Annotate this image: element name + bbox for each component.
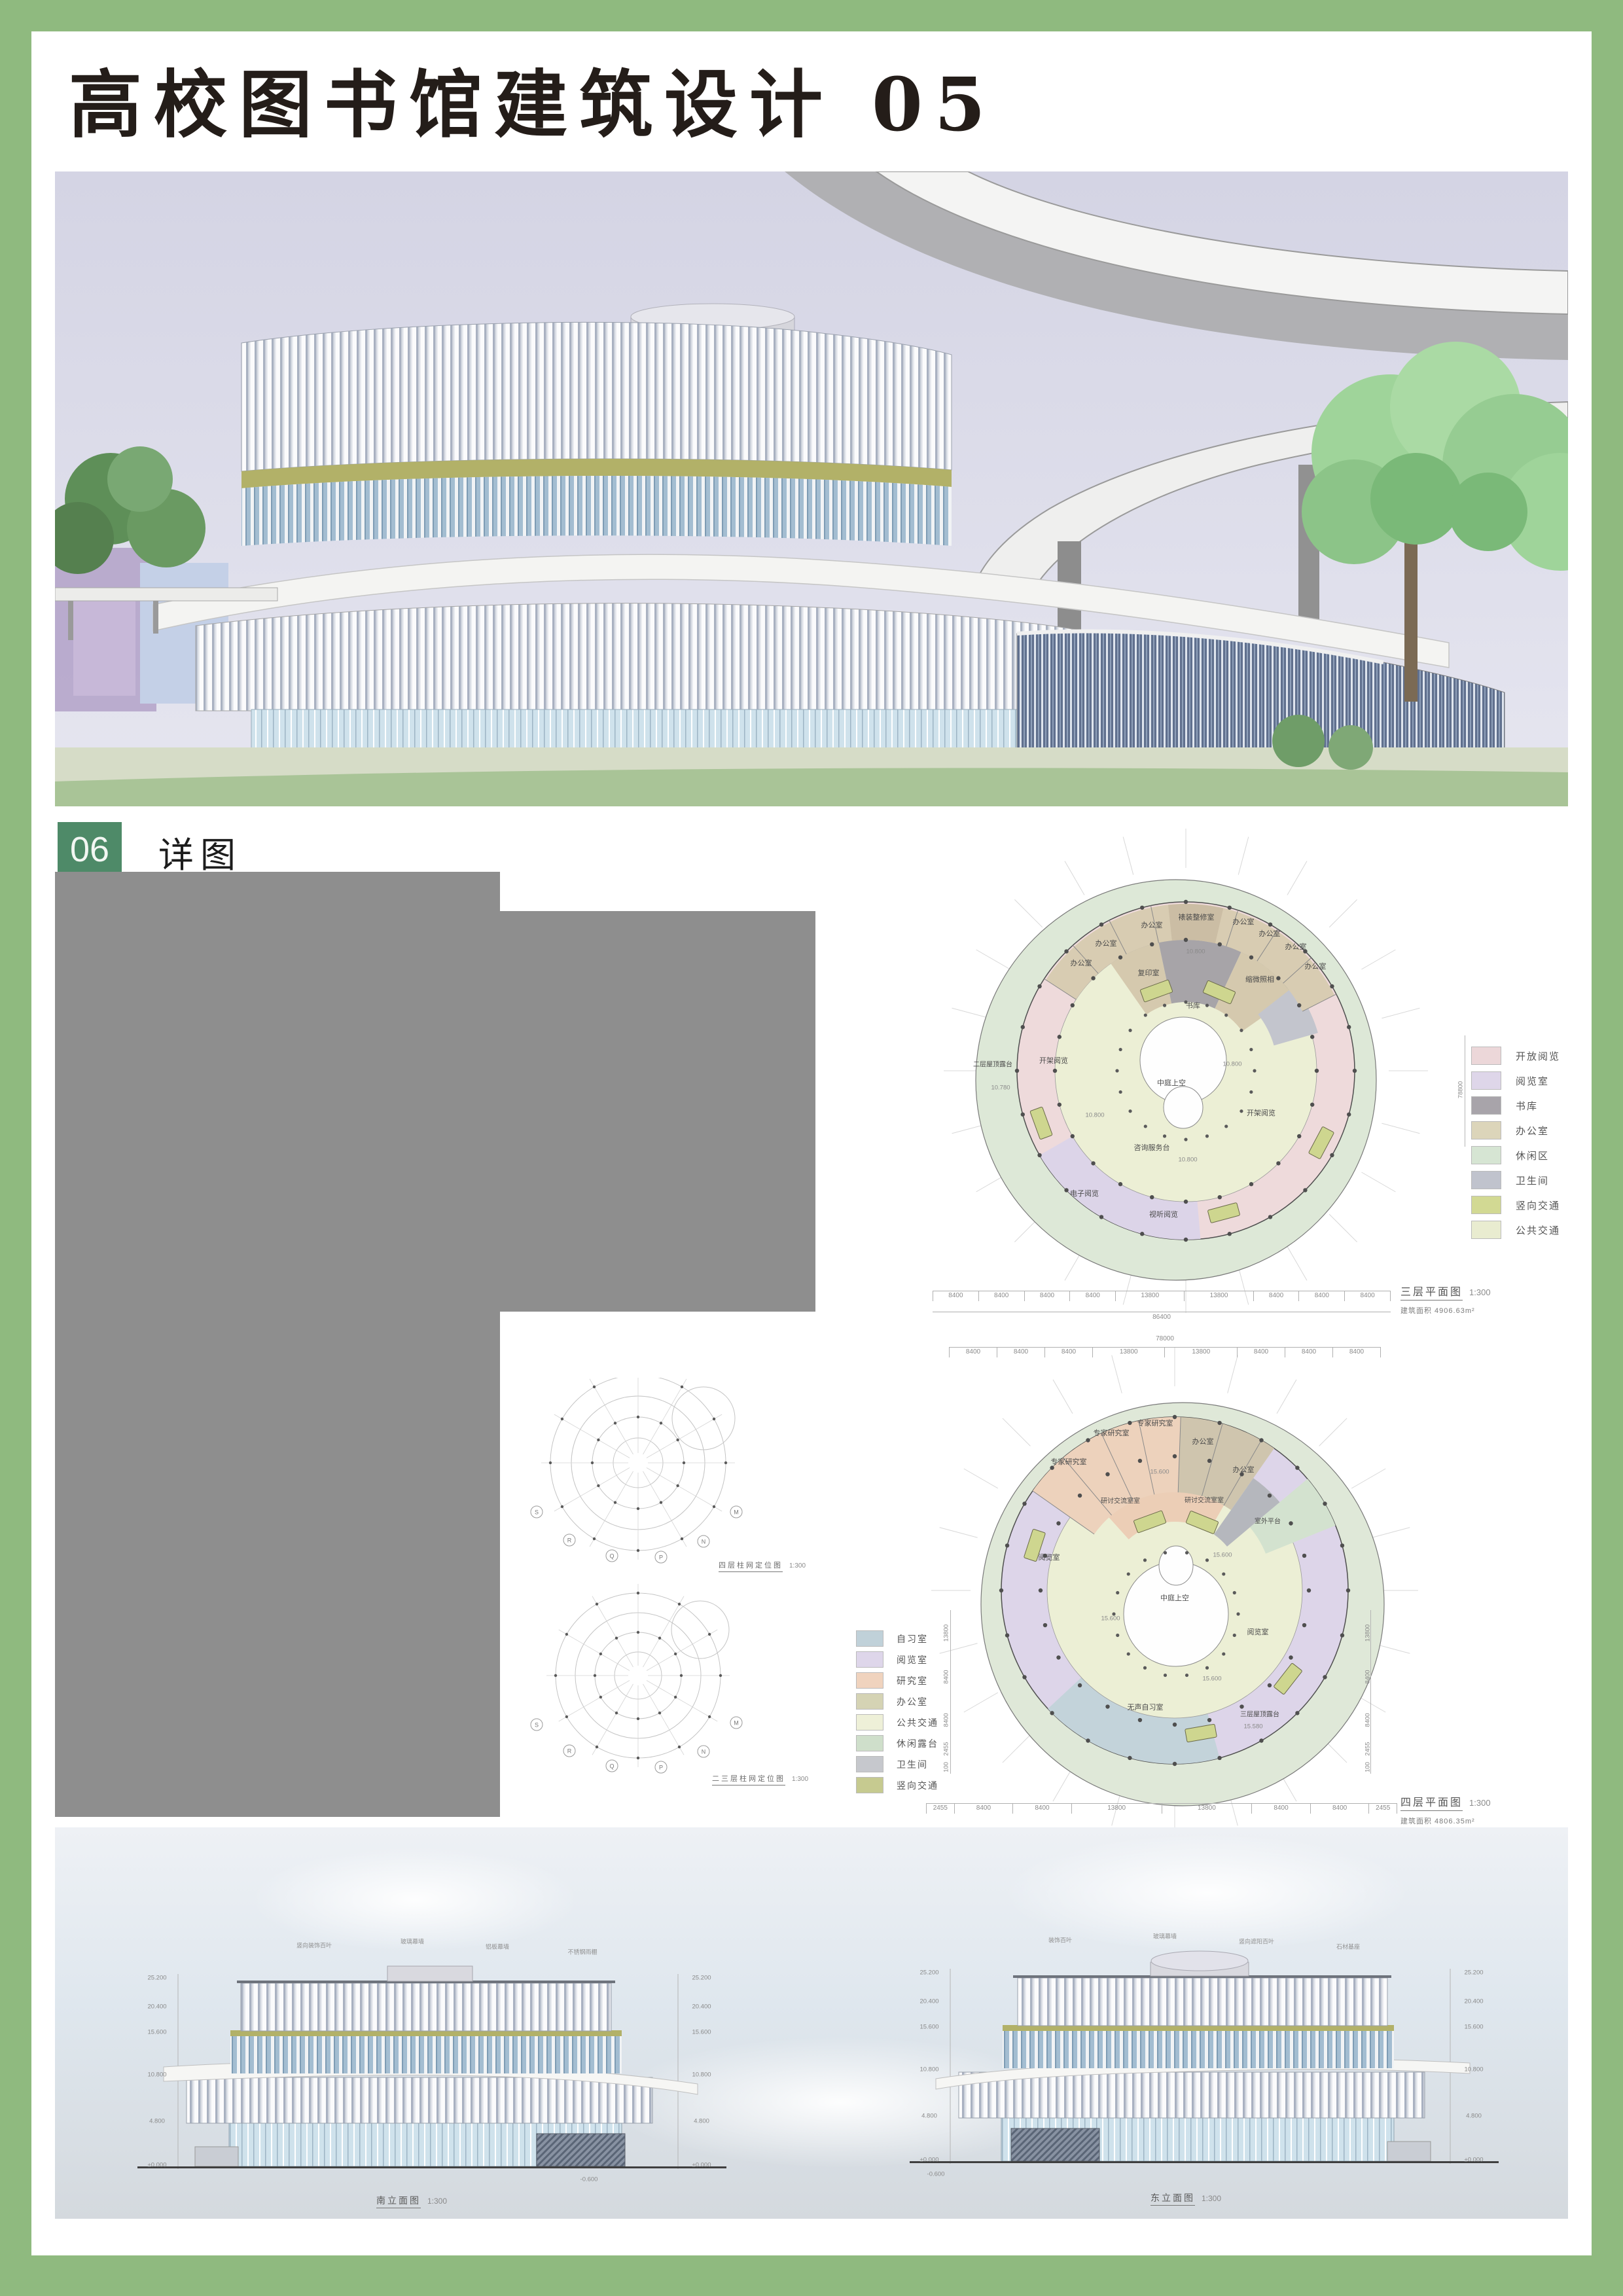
legend-swatch [856, 1756, 883, 1772]
drawing-label: ±0.000 [692, 2162, 711, 2169]
drawing-label: 15.600 [1150, 1469, 1169, 1476]
dimension-value: 8400 [954, 1804, 1013, 1814]
dimension-value: 8400 [1332, 1348, 1381, 1357]
drawing-label: S [531, 1506, 543, 1518]
drawing-label: 竖向遮阳百叶 [1239, 1937, 1274, 1946]
legend-item: 阅览室 [1471, 1072, 1560, 1089]
legend-item: 卫生间 [856, 1757, 938, 1772]
legend-plan-4: 自习室阅览室研究室办公室公共交通休闲露台卫生间竖向交通 [856, 1631, 938, 1799]
legend-label: 公共交通 [897, 1716, 938, 1729]
drawing-label: 办公室 [1141, 920, 1163, 930]
drawing-label: 玻璃幕墙 [1153, 1932, 1177, 1941]
caption-text: 东立面图 [1150, 2193, 1195, 2206]
drawing-label: 竖向装饰百叶 [296, 1941, 332, 1950]
drawing-label: 4.800 [149, 2118, 165, 2125]
building-rendering-image [55, 171, 1568, 806]
legend-swatch [856, 1777, 883, 1793]
drawing-label: 办公室 [1259, 928, 1281, 939]
page-title: 高校图书馆建筑设计 05 [69, 46, 1508, 152]
drawing-label: 10.800 [1222, 1061, 1241, 1068]
drawing-label: 10.780 [991, 1085, 1010, 1092]
drawing-label: 不锈钢雨棚 [567, 1948, 597, 1956]
legend-label: 办公室 [897, 1695, 928, 1708]
elevation-south-drawing [118, 1936, 746, 2198]
caption-scale: 1:300 [792, 1776, 808, 1783]
legend-item: 竖向交通 [856, 1778, 938, 1793]
dimension-value: 13800 [1162, 1804, 1252, 1814]
drawing-label: 研讨交流室室 [1101, 1496, 1140, 1505]
legend-swatch [1471, 1047, 1501, 1065]
drawing-label: 办公室 [1233, 916, 1255, 927]
dimension-value: 2455 [926, 1804, 954, 1814]
drawing-label: 25.200 [147, 1975, 166, 1982]
legend-label: 休闲区 [1516, 1149, 1549, 1162]
dimension-value: 13800 [1092, 1348, 1165, 1357]
column-grid-drawing [514, 1378, 776, 1568]
column-grid-diagram-2: SRQPNM [514, 1584, 776, 1780]
column-grid-drawing [514, 1584, 776, 1780]
drawing-label: 无声自习室 [1128, 1702, 1164, 1712]
drawing-label: 室外平台 [1255, 1516, 1281, 1526]
caption-text: 二三层柱网定位图 [712, 1775, 785, 1785]
legend-item: 办公室 [856, 1694, 938, 1709]
dimension-value: 8400 [1251, 1804, 1310, 1814]
dimension-line [1370, 1610, 1371, 1774]
elevation-east-caption: 东立面图1:300 [1150, 2191, 1221, 2204]
dimension-value: 13800 [1071, 1804, 1162, 1814]
column-grid-diagram-1: SRQPNM [514, 1378, 776, 1568]
drawing-label: 4.800 [1466, 2113, 1482, 2120]
placeholder-image-left [55, 872, 500, 1817]
drawing-label: 10.800 [147, 2072, 166, 2079]
legend-label: 公共交通 [1516, 1223, 1560, 1237]
floor-plan-3: 办公室办公室办公室裱装整修室办公室办公室办公室办公室复印室缩微照相书库10.80… [890, 823, 1479, 1340]
dimension-chain-plan2-top: 8400840084001380013800840084008400 [949, 1347, 1381, 1357]
dimension-chain-plan2-bottom: 2455840084001380013800840084002455 [926, 1803, 1397, 1814]
drawing-label: 办公室 [1233, 1464, 1255, 1475]
drawing-label: 15.600 [919, 2024, 938, 2031]
drawing-label: 专家研究室 [1094, 1427, 1130, 1438]
dimension-chain-plan1-bottom: 84008400840084001380013800840084008400 [933, 1291, 1391, 1301]
drawing-label: N [698, 1535, 710, 1548]
section-title: 详图 [158, 826, 242, 878]
drawing-label: 15.600 [1101, 1615, 1120, 1623]
legend-label: 阅览室 [897, 1653, 928, 1666]
legend-item: 研究室 [856, 1673, 938, 1688]
legend-label: 竖向交通 [1516, 1198, 1560, 1212]
dimension-value: 8400 [1044, 1348, 1092, 1357]
drawing-label: 缩微照相 [1245, 974, 1274, 984]
drawing-label: 专家研究室 [1137, 1418, 1173, 1428]
legend-label: 阅览室 [1516, 1074, 1549, 1088]
frame-border-left [0, 0, 31, 2296]
drawing-label: 复印室 [1138, 967, 1160, 978]
drawing-label: 25.200 [919, 1969, 938, 1977]
dimension-value: 8400 [997, 1348, 1044, 1357]
legend-label: 竖向交通 [897, 1779, 938, 1792]
legend-swatch [1471, 1071, 1501, 1090]
frame-border-top [0, 0, 1623, 31]
drawing-label: 4.800 [921, 2113, 937, 2120]
drawing-label: 铝板幕墙 [486, 1943, 509, 1951]
dimension-value: 8400 [1298, 1291, 1344, 1301]
legend-label: 开放阅览 [1516, 1049, 1560, 1063]
elevation-south: 25.20020.40015.60010.8004.800±0.00025.20… [118, 1936, 746, 2198]
legend-item: 休闲露台 [856, 1736, 938, 1751]
dimension-value: 13800 [1115, 1291, 1184, 1301]
caption-scale: 1:300 [789, 1562, 806, 1570]
dimension-value: 8400 [1253, 1291, 1299, 1301]
drawing-label: 办公室 [1192, 1436, 1214, 1446]
elevation-east: 25.20020.40015.60010.8004.800±0.00025.20… [890, 1931, 1518, 2193]
drawing-label: 中庭上空 [1157, 1077, 1186, 1088]
legend-swatch [856, 1693, 883, 1710]
caption-area: 建筑面积 4906.63m² [1400, 1305, 1584, 1316]
drawing-label: 书库 [1186, 1000, 1200, 1011]
dimension-value: 8400 [1012, 1804, 1071, 1814]
drawing-label: 三层屋顶露台 [1240, 1709, 1279, 1719]
legend-item: 竖向交通 [1471, 1196, 1560, 1213]
legend-swatch [856, 1735, 883, 1751]
legend-swatch [1471, 1121, 1501, 1139]
drawing-label: 研讨交流室室 [1185, 1495, 1224, 1505]
caption-area: 建筑面积 4806.35m² [1400, 1816, 1584, 1826]
drawing-label: M [730, 1717, 743, 1729]
legend-item: 书库 [1471, 1097, 1560, 1114]
legend-label: 办公室 [1516, 1124, 1549, 1138]
drawing-label: 阅览室 [1247, 1626, 1269, 1637]
dimension-total-plan1: 86400 [933, 1312, 1391, 1321]
drawing-label: 10.800 [919, 2066, 938, 2073]
drawing-label: 裱装整修室 [1179, 912, 1215, 922]
legend-swatch [1471, 1146, 1501, 1164]
frame-border-right [1592, 0, 1623, 2296]
elevation-south-caption: 南立面图1:300 [376, 2194, 447, 2207]
caption-text: 三层平面图 [1400, 1287, 1463, 1300]
dimension-value: 8400 [1344, 1291, 1391, 1301]
drawing-label: 开架阅览 [1247, 1107, 1275, 1118]
drawing-label: 15.600 [147, 2029, 166, 2036]
dimension-value: 8400 [1237, 1348, 1285, 1357]
caption-scale: 1:300 [1202, 2194, 1221, 2203]
drawing-label: 15.600 [1213, 1552, 1232, 1559]
hero-rendering [55, 171, 1568, 806]
dimension-line [950, 1610, 951, 1774]
dimension-value: 2455 [1368, 1804, 1397, 1814]
drawing-label: 视听阅览 [1149, 1209, 1178, 1219]
dimension-value: 13800 [1184, 1291, 1253, 1301]
drawing-label: 10.800 [1186, 948, 1205, 956]
legend-swatch [1471, 1221, 1501, 1239]
section-number-badge: 06 [58, 822, 122, 877]
drawing-label: 办公室 [1071, 958, 1092, 968]
drawing-label: 专家研究室 [1051, 1456, 1087, 1467]
drawing-label: -0.600 [580, 2176, 598, 2183]
drawing-label: 办公室 [1096, 938, 1117, 948]
elevation-east-drawing [890, 1931, 1518, 2193]
drawing-label: ±0.000 [1465, 2157, 1484, 2164]
caption-scale: 1:300 [427, 2197, 447, 2206]
drawing-label: Q [606, 1550, 618, 1562]
caption-text: 南立面图 [376, 2195, 421, 2208]
drawing-label: 10.800 [1085, 1112, 1104, 1119]
drawing-label: ±0.000 [920, 2157, 939, 2164]
dimension-value: 13800 [1164, 1348, 1237, 1357]
drawing-label: 咨询服务台 [1134, 1142, 1170, 1153]
drawing-label: 20.400 [147, 2003, 166, 2011]
legend-swatch [856, 1672, 883, 1689]
legend-label: 研究室 [897, 1674, 928, 1687]
dimension-value: 8400 [933, 1291, 978, 1301]
legend-label: 书库 [1516, 1099, 1538, 1113]
drawing-label: 25.200 [1464, 1969, 1483, 1977]
drawing-label: P [655, 1761, 668, 1774]
caption-scale: 1:300 [1469, 1287, 1491, 1297]
drawing-label: 15.600 [692, 2029, 711, 2036]
drawing-label: 装饰百叶 [1048, 1936, 1072, 1945]
legend-item: 公共交通 [1471, 1221, 1560, 1238]
plan-4-caption: 四层平面图1:300 建筑面积 4806.35m² [1400, 1793, 1584, 1826]
drawing-label: -0.600 [927, 2171, 945, 2178]
legend-swatch [1471, 1096, 1501, 1115]
drawing-label: 15.580 [1243, 1723, 1262, 1731]
drawing-label: 25.200 [692, 1975, 711, 1982]
drawing-label: 10.800 [692, 2072, 711, 2079]
drawing-label: 电子阅览 [1070, 1188, 1099, 1198]
drawing-label: 15.600 [1202, 1676, 1221, 1683]
legend-swatch [1471, 1196, 1501, 1214]
dimension-line [1465, 1035, 1465, 1147]
plan-3-caption: 三层平面图1:300 建筑面积 4906.63m² [1400, 1283, 1584, 1316]
floor-plan-4: 专家研究室专家研究室专家研究室办公室办公室15.600研讨交流室室研讨交流室室室… [890, 1334, 1479, 1851]
caption-text: 四层平面图 [1400, 1797, 1463, 1811]
drawing-label: 20.400 [919, 1998, 938, 2005]
caption-text: 四层柱网定位图 [719, 1562, 783, 1572]
placeholder-image-right [500, 911, 815, 1312]
dimension-value: 8400 [1285, 1348, 1332, 1357]
drawing-label: 20.400 [692, 2003, 711, 2011]
drawing-label: M [730, 1506, 743, 1518]
legend-swatch [856, 1651, 883, 1668]
legend-label: 自习室 [897, 1632, 928, 1645]
drawing-label: N [698, 1746, 710, 1758]
dimension-value: 8400 [978, 1291, 1024, 1301]
drawing-label: 石材基座 [1336, 1943, 1360, 1951]
drawing-label: 办公室 [1305, 961, 1327, 971]
drawing-label: 4.800 [694, 2118, 709, 2125]
drawing-label: R [563, 1745, 576, 1757]
drawing-label: ±0.000 [148, 2162, 167, 2169]
dimension-value: 8400 [949, 1348, 997, 1357]
legend-plan-3: 开放阅览阅览室书库办公室休闲区卫生间竖向交通公共交通 [1471, 1047, 1560, 1246]
diagram-2-caption: 二三层柱网定位图1:300 [712, 1772, 808, 1784]
legend-item: 自习室 [856, 1631, 938, 1646]
drawing-label: 15.600 [1464, 2024, 1483, 2031]
legend-label: 卫生间 [897, 1758, 928, 1771]
legend-swatch [856, 1630, 883, 1647]
drawing-label: 20.400 [1464, 1998, 1483, 2005]
dimension-total-plan2-top: 78000 [949, 1335, 1381, 1342]
drawing-label: 开架阅览 [1039, 1055, 1068, 1066]
dimension-value: 8400 [1024, 1291, 1070, 1301]
drawing-label: 办公室 [1285, 941, 1307, 952]
legend-label: 休闲露台 [897, 1737, 938, 1750]
drawing-label: 玻璃幕墙 [401, 1937, 424, 1946]
legend-item: 公共交通 [856, 1715, 938, 1730]
section-number: 06 [70, 829, 109, 870]
caption-scale: 1:300 [1469, 1798, 1491, 1808]
presentation-board: 高校图书馆建筑设计 05 [0, 0, 1623, 2296]
dimension-value: 8400 [1310, 1804, 1369, 1814]
legend-swatch [1471, 1171, 1501, 1189]
legend-item: 休闲区 [1471, 1147, 1560, 1164]
drawing-label: P [655, 1551, 668, 1564]
frame-border-bottom [0, 2255, 1623, 2296]
drawing-label: R [563, 1534, 576, 1547]
drawing-label: 10.800 [1464, 2066, 1483, 2073]
drawing-label: S [531, 1719, 543, 1731]
legend-item: 开放阅览 [1471, 1047, 1560, 1064]
legend-swatch [856, 1714, 883, 1731]
drawing-label: 中庭上空 [1160, 1592, 1189, 1603]
legend-item: 阅览室 [856, 1652, 938, 1667]
drawing-label: 二层屋顶露台 [973, 1059, 1012, 1069]
dimension-value: 8400 [1069, 1291, 1115, 1301]
legend-label: 卫生间 [1516, 1174, 1549, 1187]
diagram-1-caption: 四层柱网定位图1:300 [719, 1559, 806, 1571]
drawing-label: 阅览室 [1039, 1552, 1060, 1562]
legend-item: 卫生间 [1471, 1172, 1560, 1189]
legend-item: 办公室 [1471, 1122, 1560, 1139]
drawing-label: 10.800 [1178, 1157, 1197, 1164]
drawing-label: Q [606, 1760, 618, 1772]
